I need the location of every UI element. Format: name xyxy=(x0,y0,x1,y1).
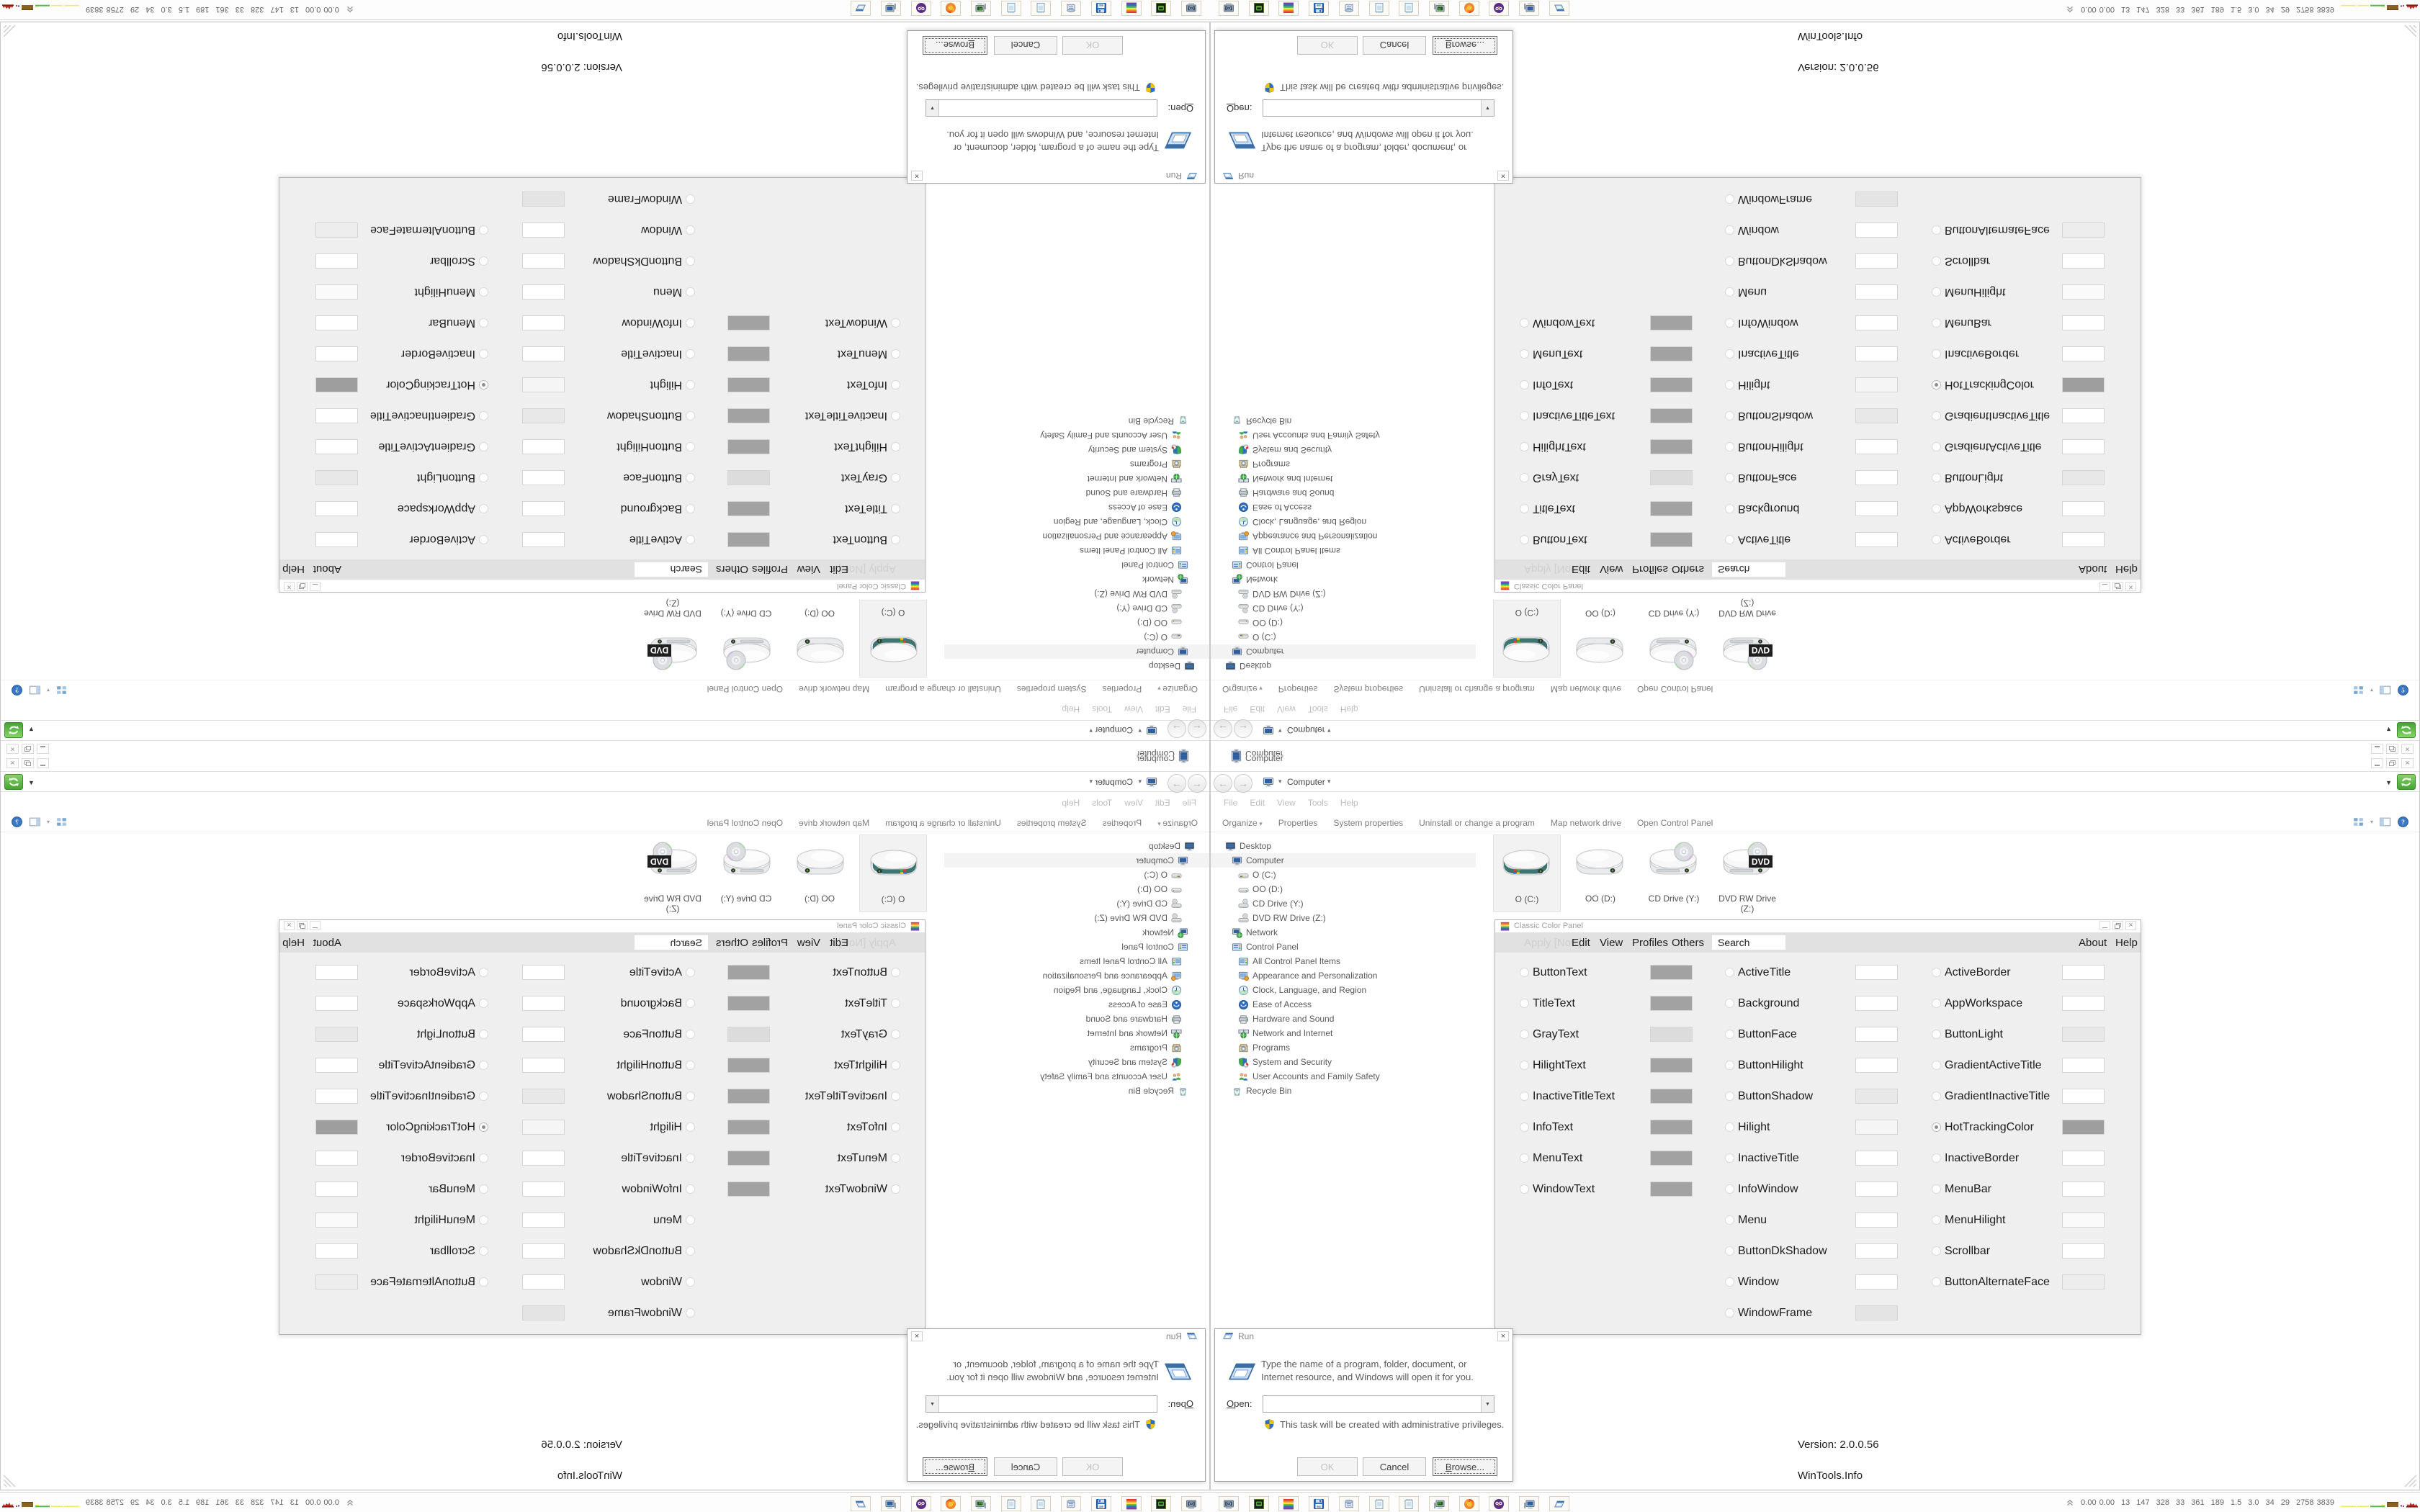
radio-window[interactable] xyxy=(1725,225,1734,235)
radio-infotext[interactable] xyxy=(1520,1122,1529,1132)
color-swatch-hilighttext[interactable] xyxy=(727,1058,770,1073)
tree-item-network[interactable]: Network xyxy=(1211,925,1481,940)
menu-profiles[interactable]: Profiles xyxy=(1632,563,1668,575)
color-swatch-menubar[interactable] xyxy=(2062,315,2105,330)
address-dropdown-icon[interactable]: ▼ xyxy=(2385,726,2392,733)
color-swatch-hilight[interactable] xyxy=(522,377,565,392)
radio-hottrackingcolor[interactable] xyxy=(479,1122,488,1132)
radio-buttonshadow[interactable] xyxy=(686,1092,695,1101)
drive-item-cd-drive-y[interactable]: CD Drive (Y:) xyxy=(712,834,780,912)
color-swatch-inactivetitletext[interactable] xyxy=(727,1089,770,1104)
radio-titletext[interactable] xyxy=(1520,999,1529,1008)
color-swatch-inactivetitle[interactable] xyxy=(522,346,565,361)
help-icon[interactable]: ? xyxy=(2397,816,2409,828)
minimize-button[interactable] xyxy=(37,744,49,754)
breadcrumb-caret-icon[interactable]: ▾ xyxy=(1138,778,1142,786)
color-swatch-hottrackingcolor[interactable] xyxy=(315,377,358,392)
tree-item-system-and-security[interactable]: System and Security xyxy=(1211,1055,1481,1069)
color-swatch-scrollbar[interactable] xyxy=(315,253,358,269)
tree-item-system-and-security[interactable]: System and Security xyxy=(939,443,1209,457)
color-swatch-inactiveborder[interactable] xyxy=(2062,346,2105,361)
taskbar-button-owl[interactable] xyxy=(911,1,931,16)
tree-item-clock-language-and-region[interactable]: Clock, Language, and Region xyxy=(1211,983,1481,997)
color-swatch-buttonshadow[interactable] xyxy=(522,408,565,423)
color-swatch-menutext[interactable] xyxy=(727,346,770,361)
tree-item-recycle-bin[interactable]: Recycle Bin xyxy=(939,1084,1209,1098)
command-organize[interactable]: Organize xyxy=(1157,685,1198,695)
color-swatch-infotext[interactable] xyxy=(727,1120,770,1135)
color-swatch-activetitle[interactable] xyxy=(522,965,565,980)
menu-help[interactable]: Help xyxy=(282,563,305,575)
tree-item-recycle-bin[interactable]: Recycle Bin xyxy=(939,414,1209,428)
radio-background[interactable] xyxy=(1725,999,1734,1008)
radio-windowtext[interactable] xyxy=(891,318,900,328)
tree-item-ease-of-access[interactable]: Ease of Access xyxy=(939,500,1209,515)
minimize-button[interactable] xyxy=(310,921,321,930)
taskbar-button-notepad[interactable] xyxy=(1369,1,1389,16)
command-organize[interactable]: Organize xyxy=(1222,685,1263,695)
tree-item-computer-clipped[interactable]: Computer xyxy=(1137,756,1189,765)
taskbar-button-firefox[interactable] xyxy=(1459,1,1479,16)
tree-item-hardware-and-sound[interactable]: Hardware and Sound xyxy=(939,1012,1209,1026)
color-swatch-buttondkshadow[interactable] xyxy=(1855,1243,1898,1259)
refresh-button[interactable] xyxy=(2397,722,2416,738)
color-swatch-buttontext[interactable] xyxy=(1650,965,1693,980)
radio-menu[interactable] xyxy=(686,287,695,297)
color-swatch-menutext[interactable] xyxy=(1650,1151,1693,1166)
restore-button[interactable] xyxy=(297,921,308,930)
radio-infotext[interactable] xyxy=(891,380,900,390)
resize-grip[interactable] xyxy=(2402,1474,2416,1487)
color-swatch-buttontext[interactable] xyxy=(1650,532,1693,547)
radio-titletext[interactable] xyxy=(1520,504,1529,513)
cancel-button[interactable]: Cancel xyxy=(994,36,1057,55)
breadcrumb-caret-icon[interactable]: ▾ xyxy=(1327,778,1331,786)
radio-inactivetitle[interactable] xyxy=(1725,349,1734,359)
forward-button[interactable]: → xyxy=(1234,719,1252,738)
menu-tools[interactable]: Tools xyxy=(1308,704,1328,714)
color-swatch-activeborder[interactable] xyxy=(315,532,358,547)
menu-view[interactable]: View xyxy=(1277,798,1296,808)
radio-activetitle[interactable] xyxy=(1725,535,1734,544)
drive-item-dvd-rw-drive-z[interactable]: DVDDVD RW Drive (Z:) xyxy=(639,600,707,678)
tree-item-control-panel[interactable]: Control Panel xyxy=(1211,558,1481,572)
command-uninstall-or-change-a-program[interactable]: Uninstall or change a program xyxy=(885,818,1001,828)
menu-view[interactable]: View xyxy=(1277,704,1296,714)
color-swatch-gradientactivetitle[interactable] xyxy=(2062,1058,2105,1073)
change-view-icon[interactable] xyxy=(55,684,68,696)
menu-edit[interactable]: Edit xyxy=(1572,937,1590,949)
taskbar-button-color-panel[interactable] xyxy=(1278,1496,1299,1511)
tree-item-network[interactable]: Network xyxy=(1211,572,1481,587)
radio-titletext[interactable] xyxy=(891,999,900,1008)
tree-item-ease-of-access[interactable]: Ease of Access xyxy=(1211,500,1481,515)
search-input[interactable]: Search xyxy=(635,935,708,950)
ok-button[interactable]: OK xyxy=(1062,36,1123,55)
color-swatch-windowtext[interactable] xyxy=(1650,315,1693,330)
color-swatch-appworkspace[interactable] xyxy=(315,996,358,1011)
radio-windowframe[interactable] xyxy=(1725,194,1734,204)
radio-menutext[interactable] xyxy=(1520,1153,1529,1163)
minimize-button[interactable] xyxy=(2099,582,2110,591)
radio-menubar[interactable] xyxy=(1932,1184,1941,1194)
tree-item-computer[interactable]: Computer xyxy=(1211,853,1476,868)
color-swatch-menutext[interactable] xyxy=(727,1151,770,1166)
command-uninstall-or-change-a-program[interactable]: Uninstall or change a program xyxy=(1419,685,1535,695)
color-swatch-windowtext[interactable] xyxy=(727,1182,770,1197)
command-uninstall-or-change-a-program[interactable]: Uninstall or change a program xyxy=(885,685,1001,695)
radio-menubar[interactable] xyxy=(1932,318,1941,328)
color-swatch-buttonshadow[interactable] xyxy=(1855,408,1898,423)
taskbar-button-pc-green[interactable] xyxy=(1429,1,1449,16)
taskbar-button-notepad[interactable] xyxy=(1001,1496,1021,1511)
taskbar-button-notepad[interactable] xyxy=(1399,1496,1419,1511)
radio-menu[interactable] xyxy=(686,1215,695,1225)
radio-buttonlight[interactable] xyxy=(479,1030,488,1039)
breadcrumb-computer[interactable]: Computer xyxy=(1095,777,1133,787)
radio-windowtext[interactable] xyxy=(1520,318,1529,328)
help-icon[interactable]: ? xyxy=(11,816,23,828)
radio-buttonalternateface[interactable] xyxy=(1932,1277,1941,1287)
color-swatch-buttonface[interactable] xyxy=(1855,1027,1898,1042)
tree-item-ease-of-access[interactable]: Ease of Access xyxy=(939,997,1209,1012)
color-swatch-menuhilight[interactable] xyxy=(2062,284,2105,300)
taskbar-button-firefox[interactable] xyxy=(941,1,961,16)
menu-profiles[interactable]: Profiles xyxy=(752,563,788,575)
radio-inactiveborder[interactable] xyxy=(479,1153,488,1163)
color-swatch-buttonlight[interactable] xyxy=(315,1027,358,1042)
color-swatch-infotext[interactable] xyxy=(1650,377,1693,392)
close-button[interactable]: × xyxy=(284,921,295,930)
tree-item-computer-clipped[interactable]: Computer xyxy=(1231,747,1283,756)
tree-item-o-c[interactable]: O (C:) xyxy=(939,868,1209,882)
radio-menuhilight[interactable] xyxy=(479,1215,488,1225)
color-swatch-window[interactable] xyxy=(522,222,565,238)
radio-scrollbar[interactable] xyxy=(1932,256,1941,266)
drive-item-o-c[interactable]: O (C:) xyxy=(859,834,927,912)
restore-button[interactable] xyxy=(22,758,34,768)
color-swatch-buttonface[interactable] xyxy=(1855,470,1898,485)
radio-menutext[interactable] xyxy=(891,1153,900,1163)
tree-item-all-control-panel-items[interactable]: All Control Panel Items xyxy=(1211,954,1481,968)
color-swatch-buttonshadow[interactable] xyxy=(522,1089,565,1104)
radio-menuhilight[interactable] xyxy=(479,287,488,297)
radio-activetitle[interactable] xyxy=(686,968,695,977)
color-swatch-infotext[interactable] xyxy=(1650,1120,1693,1135)
command-system-properties[interactable]: System properties xyxy=(1017,685,1087,695)
color-swatch-activetitle[interactable] xyxy=(522,532,565,547)
browse-button[interactable]: Browse... xyxy=(1433,1457,1497,1476)
tree-item-o-c[interactable]: O (C:) xyxy=(1211,630,1481,644)
radio-titletext[interactable] xyxy=(891,504,900,513)
color-swatch-hilight[interactable] xyxy=(522,1120,565,1135)
menu-view[interactable]: View xyxy=(1600,563,1623,575)
help-icon[interactable]: ? xyxy=(11,684,23,696)
tree-item-oo-d[interactable]: OO (D:) xyxy=(939,616,1209,630)
menu-help[interactable]: Help xyxy=(2115,937,2138,949)
color-swatch-buttonhilight[interactable] xyxy=(522,439,565,454)
radio-graytext[interactable] xyxy=(1520,1030,1529,1039)
color-swatch-menubar[interactable] xyxy=(315,1182,358,1197)
color-swatch-infowindow[interactable] xyxy=(1855,1182,1898,1197)
color-swatch-infotext[interactable] xyxy=(727,377,770,392)
help-icon[interactable]: ? xyxy=(2397,684,2409,696)
color-swatch-gradientinactivetitle[interactable] xyxy=(315,408,358,423)
taskbar-button-floppy-64[interactable]: 64 xyxy=(1309,1,1329,16)
tree-item-dvd-rw-drive-z[interactable]: DVD RW Drive (Z:) xyxy=(939,911,1209,925)
menu-file[interactable]: File xyxy=(1183,798,1196,808)
minimize-button[interactable] xyxy=(2371,758,2383,768)
taskbar-button-pc-blue[interactable] xyxy=(1519,1,1539,16)
radio-buttontext[interactable] xyxy=(891,535,900,544)
breadcrumb-caret-icon[interactable]: ▾ xyxy=(1089,726,1093,734)
tree-item-network-and-internet[interactable]: Network and Internet xyxy=(1211,1026,1481,1040)
color-swatch-inactiveborder[interactable] xyxy=(315,346,358,361)
radio-background[interactable] xyxy=(686,504,695,513)
radio-hilighttext[interactable] xyxy=(1520,1061,1529,1070)
tree-item-all-control-panel-items[interactable]: All Control Panel Items xyxy=(939,954,1209,968)
command-system-properties[interactable]: System properties xyxy=(1017,818,1087,828)
back-button[interactable]: ← xyxy=(1188,774,1206,793)
color-swatch-buttontext[interactable] xyxy=(727,532,770,547)
tree-item-appearance-and-personalization[interactable]: Appearance and Personalization xyxy=(1211,529,1481,544)
command-uninstall-or-change-a-program[interactable]: Uninstall or change a program xyxy=(1419,818,1535,828)
menu-edit[interactable]: Edit xyxy=(1250,798,1265,808)
tree-item-programs[interactable]: Programs xyxy=(939,457,1209,472)
color-swatch-inactivetitletext[interactable] xyxy=(1650,1089,1693,1104)
command-organize[interactable]: Organize xyxy=(1157,818,1198,828)
color-swatch-titletext[interactable] xyxy=(1650,501,1693,516)
taskbar-button-notepad[interactable] xyxy=(1031,1,1052,16)
menu-help[interactable]: Help xyxy=(1340,798,1358,808)
close-button[interactable]: × xyxy=(6,758,19,768)
tree-item-computer[interactable]: Computer xyxy=(944,644,1209,659)
color-swatch-window[interactable] xyxy=(522,1274,565,1290)
color-swatch-hottrackingcolor[interactable] xyxy=(2062,377,2105,392)
preview-pane-icon[interactable] xyxy=(2379,816,2391,828)
radio-window[interactable] xyxy=(1725,1277,1734,1287)
radio-graytext[interactable] xyxy=(891,473,900,482)
menu-view[interactable]: View xyxy=(1124,798,1143,808)
restore-button[interactable] xyxy=(2112,582,2123,591)
minimize-button[interactable] xyxy=(310,582,321,591)
radio-appworkspace[interactable] xyxy=(479,999,488,1008)
color-swatch-graytext[interactable] xyxy=(1650,1027,1693,1042)
menu-help[interactable]: Help xyxy=(282,937,305,949)
preview-pane-icon[interactable] xyxy=(29,684,41,696)
radio-buttonalternateface[interactable] xyxy=(479,225,488,235)
taskbar-button-run-glyph[interactable] xyxy=(1549,1496,1569,1511)
radio-buttonface[interactable] xyxy=(686,473,695,482)
radio-hilighttext[interactable] xyxy=(1520,442,1529,451)
menu-edit[interactable]: Edit xyxy=(1155,704,1170,714)
taskbar-button-run-glyph[interactable] xyxy=(851,1496,871,1511)
taskbar-button-notepad[interactable] xyxy=(1031,1496,1052,1511)
radio-menutext[interactable] xyxy=(1520,349,1529,359)
radio-inactivetitletext[interactable] xyxy=(1520,1092,1529,1101)
radio-buttonlight[interactable] xyxy=(479,473,488,482)
browse-button[interactable]: Browse... xyxy=(1433,36,1497,55)
radio-inactivetitle[interactable] xyxy=(686,1153,695,1163)
drive-item-o-c[interactable]: O (C:) xyxy=(859,600,927,678)
tree-item-control-panel[interactable]: Control Panel xyxy=(939,558,1209,572)
color-swatch-buttonhilight[interactable] xyxy=(1855,1058,1898,1073)
command-open-control-panel[interactable]: Open Control Panel xyxy=(707,685,783,695)
tree-item-network-and-internet[interactable]: Network and Internet xyxy=(1211,472,1481,486)
taskbar-button-pc-blue[interactable] xyxy=(881,1,901,16)
color-swatch-inactiveborder[interactable] xyxy=(2062,1151,2105,1166)
ok-button[interactable]: OK xyxy=(1297,36,1358,55)
close-button[interactable]: × xyxy=(6,744,19,754)
tree-item-recycle-bin[interactable]: Recycle Bin xyxy=(1211,414,1481,428)
command-open-control-panel[interactable]: Open Control Panel xyxy=(1637,685,1713,695)
color-swatch-windowframe[interactable] xyxy=(522,192,565,207)
radio-hilight[interactable] xyxy=(686,1122,695,1132)
drive-item-o-c[interactable]: O (C:) xyxy=(1493,600,1561,678)
command-map-network-drive[interactable]: Map network drive xyxy=(1551,818,1621,828)
color-swatch-buttonface[interactable] xyxy=(522,470,565,485)
color-swatch-buttondkshadow[interactable] xyxy=(1855,253,1898,269)
tree-item-hardware-and-sound[interactable]: Hardware and Sound xyxy=(939,486,1209,500)
menu-others[interactable]: Others xyxy=(1672,563,1704,575)
address-dropdown-icon[interactable]: ▼ xyxy=(2385,779,2392,786)
menu-tools[interactable]: Tools xyxy=(1308,798,1328,808)
command-map-network-drive[interactable]: Map network drive xyxy=(1551,685,1621,695)
menu-about[interactable]: About xyxy=(2079,937,2107,949)
close-button[interactable]: × xyxy=(911,1331,923,1341)
resize-grip[interactable] xyxy=(4,25,18,38)
color-swatch-menu[interactable] xyxy=(1855,1212,1898,1228)
tree-item-computer[interactable]: Computer xyxy=(944,853,1209,868)
radio-menutext[interactable] xyxy=(891,349,900,359)
command-map-network-drive[interactable]: Map network drive xyxy=(799,818,869,828)
tree-item-cd-drive-y[interactable]: CD Drive (Y:) xyxy=(939,896,1209,911)
color-swatch-activeborder[interactable] xyxy=(2062,532,2105,547)
radio-buttonface[interactable] xyxy=(1725,1030,1734,1039)
tree-item-dvd-rw-drive-z[interactable]: DVD RW Drive (Z:) xyxy=(939,587,1209,601)
menu-view[interactable]: View xyxy=(797,563,820,575)
tree-item-user-accounts-and-family-safety[interactable]: User Accounts and Family Safety xyxy=(939,1069,1209,1084)
radio-gradientinactivetitle[interactable] xyxy=(479,1092,488,1101)
color-swatch-background[interactable] xyxy=(1855,501,1898,516)
close-button[interactable]: × xyxy=(2401,758,2414,768)
radio-gradientinactivetitle[interactable] xyxy=(1932,1092,1941,1101)
color-swatch-infowindow[interactable] xyxy=(522,315,565,330)
color-swatch-activetitle[interactable] xyxy=(1855,965,1898,980)
breadcrumb-caret-icon[interactable]: ▾ xyxy=(1138,726,1142,734)
radio-graytext[interactable] xyxy=(891,1030,900,1039)
command-open-control-panel[interactable]: Open Control Panel xyxy=(1637,818,1713,828)
taskbar-button-color-panel[interactable] xyxy=(1121,1,1142,16)
radio-gradientactivetitle[interactable] xyxy=(1932,1061,1941,1070)
open-combobox[interactable]: ▼ xyxy=(926,1395,1157,1413)
back-button[interactable]: ← xyxy=(1214,774,1232,793)
color-swatch-buttonalternateface[interactable] xyxy=(315,222,358,238)
radio-inactiveborder[interactable] xyxy=(1932,1153,1941,1163)
radio-infotext[interactable] xyxy=(891,1122,900,1132)
color-swatch-hilighttext[interactable] xyxy=(1650,439,1693,454)
color-swatch-buttonhilight[interactable] xyxy=(522,1058,565,1073)
color-swatch-gradientinactivetitle[interactable] xyxy=(315,1089,358,1104)
tree-item-dvd-rw-drive-z[interactable]: DVD RW Drive (Z:) xyxy=(1211,911,1481,925)
color-swatch-background[interactable] xyxy=(1855,996,1898,1011)
radio-scrollbar[interactable] xyxy=(479,256,488,266)
menu-edit[interactable]: Edit xyxy=(1250,704,1265,714)
color-swatch-menu[interactable] xyxy=(522,284,565,300)
color-swatch-hilight[interactable] xyxy=(1855,377,1898,392)
taskbar-button-pc-blue[interactable] xyxy=(1519,1496,1539,1511)
restore-button[interactable] xyxy=(2386,744,2398,754)
color-swatch-graytext[interactable] xyxy=(727,1027,770,1042)
tree-item-hardware-and-sound[interactable]: Hardware and Sound xyxy=(1211,1012,1481,1026)
tree-item-cd-drive-y[interactable]: CD Drive (Y:) xyxy=(939,601,1209,616)
radio-gradientactivetitle[interactable] xyxy=(1932,442,1941,451)
radio-activeborder[interactable] xyxy=(1932,535,1941,544)
color-swatch-buttonalternateface[interactable] xyxy=(2062,1274,2105,1290)
taskbar-button-run-glyph[interactable] xyxy=(1549,1,1569,16)
tree-item-programs[interactable]: Programs xyxy=(1211,1040,1481,1055)
color-swatch-titletext[interactable] xyxy=(727,996,770,1011)
radio-hilight[interactable] xyxy=(1725,1122,1734,1132)
taskbar-button-floppy-64[interactable]: 64 xyxy=(1091,1496,1111,1511)
views-caret-icon[interactable]: ▾ xyxy=(2370,819,2373,825)
tree-item-hardware-and-sound[interactable]: Hardware and Sound xyxy=(1211,486,1481,500)
radio-menuhilight[interactable] xyxy=(1932,287,1941,297)
tree-item-appearance-and-personalization[interactable]: Appearance and Personalization xyxy=(1211,968,1481,983)
cancel-button[interactable]: Cancel xyxy=(1363,1457,1426,1476)
taskbar-button-notepad[interactable] xyxy=(1369,1496,1389,1511)
open-combobox[interactable]: ▼ xyxy=(926,99,1157,117)
radio-infowindow[interactable] xyxy=(1725,318,1734,328)
tree-item-appearance-and-personalization[interactable]: Appearance and Personalization xyxy=(939,968,1209,983)
radio-inactiveborder[interactable] xyxy=(1932,349,1941,359)
taskbar-button-console[interactable] xyxy=(1249,1,1269,16)
tree-item-dvd-rw-drive-z[interactable]: DVD RW Drive (Z:) xyxy=(1211,587,1481,601)
color-swatch-buttonface[interactable] xyxy=(522,1027,565,1042)
color-swatch-hilighttext[interactable] xyxy=(727,439,770,454)
menu-profiles[interactable]: Profiles xyxy=(1632,937,1668,949)
command-system-properties[interactable]: System properties xyxy=(1333,685,1403,695)
taskbar-button-screenshot-tool[interactable] xyxy=(1181,1496,1201,1511)
drive-item-o-c[interactable]: O (C:) xyxy=(1493,834,1561,912)
color-swatch-windowframe[interactable] xyxy=(522,1305,565,1320)
radio-buttondkshadow[interactable] xyxy=(686,1246,695,1256)
back-button[interactable]: ← xyxy=(1214,719,1232,738)
command-properties[interactable]: Properties xyxy=(1103,685,1142,695)
tree-item-control-panel[interactable]: Control Panel xyxy=(939,940,1209,954)
back-button[interactable]: ← xyxy=(1188,719,1206,738)
drive-item-cd-drive-y[interactable]: CD Drive (Y:) xyxy=(1640,600,1708,678)
radio-buttondkshadow[interactable] xyxy=(686,256,695,266)
menu-view[interactable]: View xyxy=(797,937,820,949)
color-swatch-buttontext[interactable] xyxy=(727,965,770,980)
tree-item-o-c[interactable]: O (C:) xyxy=(1211,868,1481,882)
radio-menuhilight[interactable] xyxy=(1932,1215,1941,1225)
tree-item-network-and-internet[interactable]: Network and Internet xyxy=(939,472,1209,486)
tree-item-o-c[interactable]: O (C:) xyxy=(939,630,1209,644)
color-swatch-inactivetitle[interactable] xyxy=(522,1151,565,1166)
command-properties[interactable]: Properties xyxy=(1103,818,1142,828)
radio-scrollbar[interactable] xyxy=(479,1246,488,1256)
color-swatch-windowtext[interactable] xyxy=(1650,1182,1693,1197)
radio-buttonhilight[interactable] xyxy=(686,442,695,451)
color-swatch-buttondkshadow[interactable] xyxy=(522,1243,565,1259)
menu-file[interactable]: File xyxy=(1224,704,1237,714)
color-swatch-activetitle[interactable] xyxy=(1855,532,1898,547)
radio-activeborder[interactable] xyxy=(479,535,488,544)
change-view-icon[interactable] xyxy=(55,816,68,828)
breadcrumb-caret-icon[interactable]: ▾ xyxy=(1278,726,1282,734)
